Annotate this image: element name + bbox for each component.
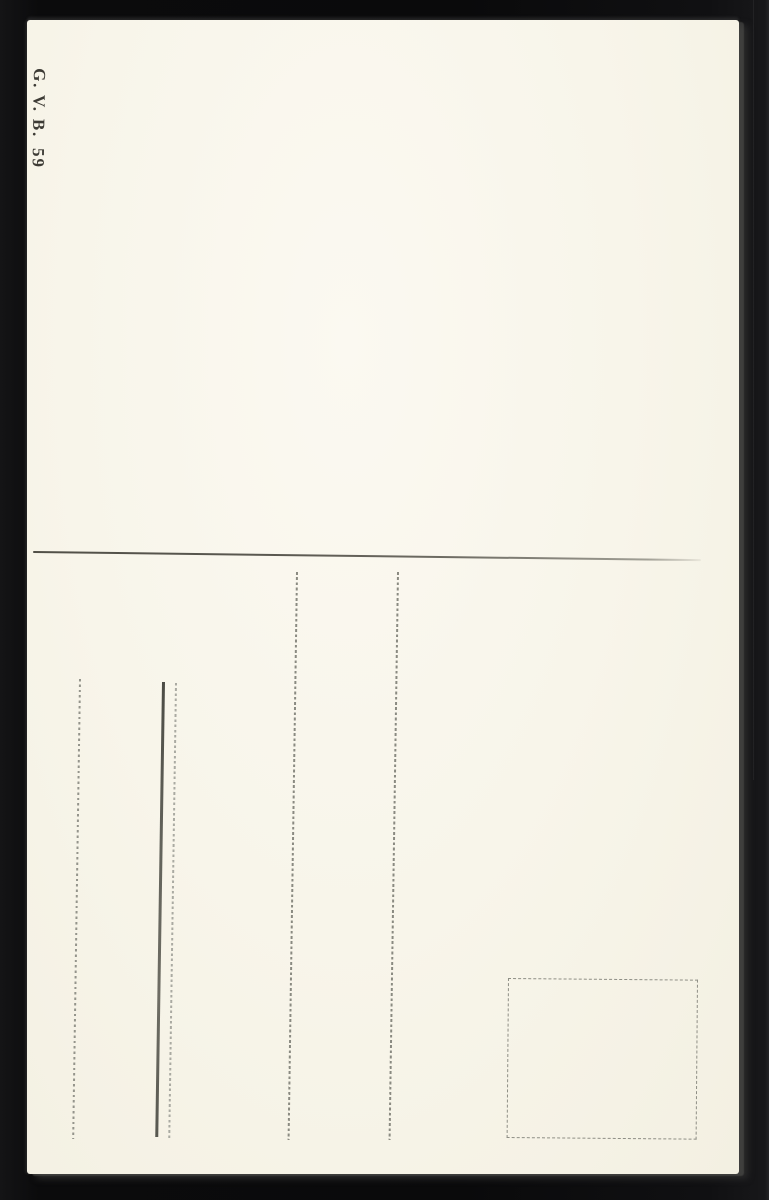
publisher-code: G. V. B.59 (28, 68, 49, 169)
address-line-2 (389, 572, 400, 1140)
message-address-divider-line (33, 551, 701, 561)
writing-line-solid (155, 682, 164, 1137)
publisher-code-text: G. V. B. (29, 68, 49, 138)
backdrop-right-edge (765, 0, 769, 1200)
backdrop-scratch-line (753, 0, 754, 780)
photo-backdrop: G. V. B.59 (0, 0, 769, 1200)
writing-line-dotted-2 (168, 683, 176, 1140)
writing-line-dotted-1 (72, 679, 81, 1139)
address-line-1 (288, 572, 299, 1140)
card-number: 59 (29, 148, 48, 169)
postcard-back: G. V. B.59 (27, 20, 739, 1174)
stamp-box (507, 978, 698, 1140)
